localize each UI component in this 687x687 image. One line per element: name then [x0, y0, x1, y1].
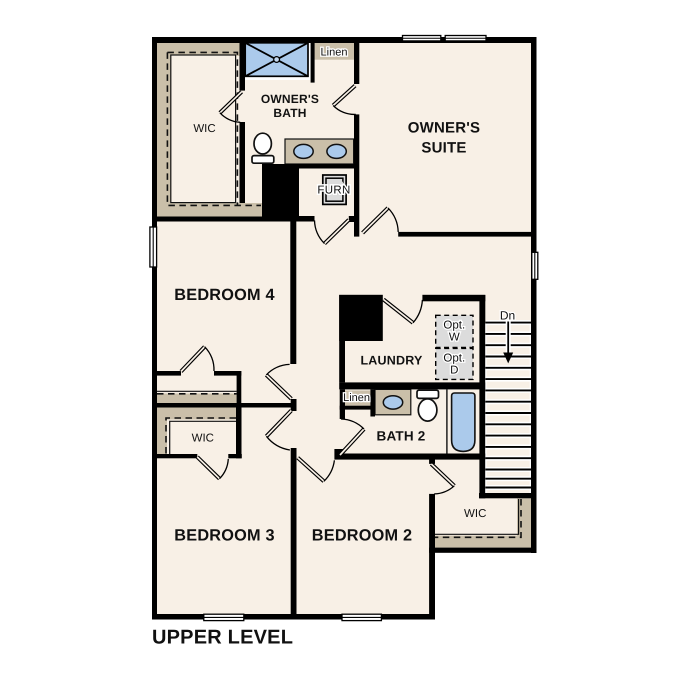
svg-text:BEDROOM 3: BEDROOM 3 — [174, 527, 274, 545]
svg-text:BEDROOM 2: BEDROOM 2 — [312, 527, 412, 545]
svg-text:Opt.: Opt. — [443, 353, 465, 365]
svg-text:W: W — [449, 332, 460, 344]
svg-text:BATH: BATH — [273, 106, 306, 120]
svg-text:Linen: Linen — [343, 392, 370, 404]
svg-text:SUITE: SUITE — [421, 140, 466, 157]
svg-text:LAUNDRY: LAUNDRY — [360, 354, 423, 368]
svg-text:OWNER'S: OWNER'S — [408, 120, 480, 137]
svg-text:Linen: Linen — [321, 47, 348, 59]
svg-text:WIC: WIC — [193, 123, 215, 135]
svg-text:BATH 2: BATH 2 — [377, 429, 426, 444]
svg-text:WIC: WIC — [192, 432, 214, 444]
svg-text:Opt.: Opt. — [443, 320, 465, 332]
svg-text:WIC: WIC — [464, 508, 486, 520]
svg-text:Dn: Dn — [500, 309, 515, 323]
svg-text:D: D — [450, 365, 458, 377]
svg-text:OWNER'S: OWNER'S — [261, 92, 319, 106]
svg-text:UPPER LEVEL: UPPER LEVEL — [152, 627, 293, 649]
svg-text:FURN: FURN — [317, 185, 350, 197]
svg-text:BEDROOM 4: BEDROOM 4 — [174, 286, 274, 304]
